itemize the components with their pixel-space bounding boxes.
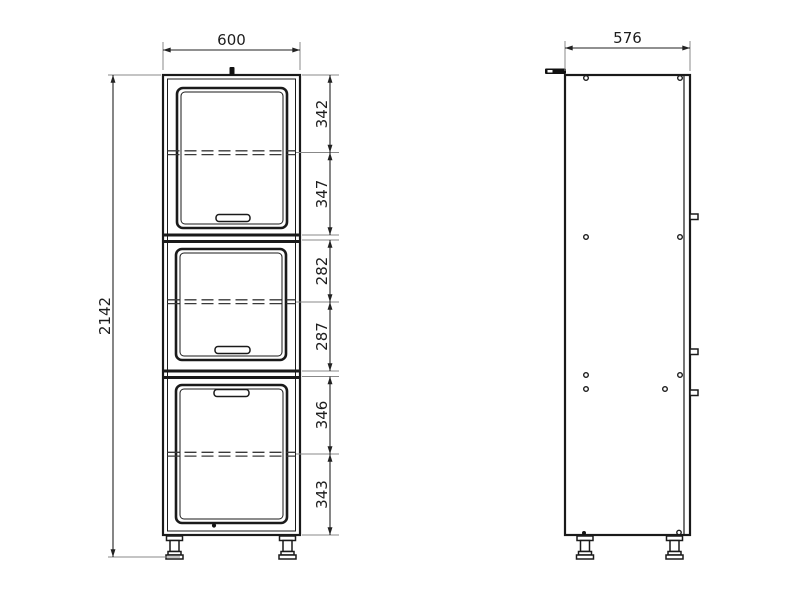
side-left-foot [577, 536, 594, 559]
front-rail-2 [163, 371, 300, 378]
drawing-canvas: 600 2142 342 347 [0, 0, 800, 600]
dimensions: 600 2142 342 347 [96, 29, 690, 557]
screw-hole [678, 76, 683, 81]
cabinet-technical-drawing: 600 2142 342 347 [0, 0, 800, 600]
screw-dot [582, 531, 586, 535]
front-shelf-bottom [168, 452, 296, 456]
front-view [163, 67, 300, 559]
mount-tab [690, 349, 698, 355]
front-screw-dot [212, 523, 216, 527]
side-panel-outline [565, 75, 690, 535]
screw-hole [584, 387, 589, 392]
screw-hole [678, 235, 683, 240]
side-screw-holes [582, 76, 682, 535]
front-door-middle [176, 249, 286, 360]
front-left-foot [166, 536, 183, 559]
dim-front-sections: 342 347 282 287 346 343 [296, 75, 339, 535]
door-inner-edge [181, 92, 283, 224]
dim-label-section-4: 287 [313, 322, 331, 351]
screw-hole [677, 530, 681, 534]
side-view [545, 69, 698, 560]
dim-label-section-1: 342 [313, 100, 331, 129]
screw-hole [678, 373, 683, 378]
dim-label-section-5: 346 [313, 401, 331, 430]
dim-label-width: 600 [217, 31, 246, 49]
front-top-peg [230, 67, 235, 75]
front-door-top [177, 88, 287, 228]
handle-slot [548, 70, 553, 73]
side-right-foot [666, 536, 683, 559]
mount-tab [690, 214, 698, 220]
side-mount-tabs [690, 214, 698, 396]
dim-side-depth: 576 [565, 29, 690, 71]
door-handle [215, 347, 250, 354]
door-handle [214, 390, 249, 397]
door-handle [216, 215, 250, 222]
dim-label-depth: 576 [613, 29, 642, 47]
dim-label-section-6: 343 [313, 480, 331, 509]
dim-front-width: 600 [163, 31, 300, 70]
door-inner-edge [180, 253, 282, 356]
mount-tab [690, 390, 698, 396]
front-rail-1 [163, 235, 300, 242]
front-shelf-middle [168, 300, 296, 304]
screw-hole [584, 235, 589, 240]
dim-label-height: 2142 [96, 297, 114, 335]
front-carcass-outer [163, 75, 300, 535]
side-handle [545, 69, 566, 75]
screw-hole [584, 76, 589, 81]
dim-label-section-3: 282 [313, 257, 331, 286]
front-door-bottom [176, 385, 287, 523]
front-carcass-inner [168, 79, 296, 531]
door-outer-edge [177, 88, 287, 228]
door-outer-edge [176, 385, 287, 523]
screw-hole [663, 387, 668, 392]
screw-hole [584, 373, 589, 378]
door-outer-edge [176, 249, 286, 360]
dim-label-section-2: 347 [313, 180, 331, 209]
front-right-foot [279, 536, 296, 559]
front-shelf-top [168, 151, 296, 155]
door-inner-edge [180, 389, 283, 519]
